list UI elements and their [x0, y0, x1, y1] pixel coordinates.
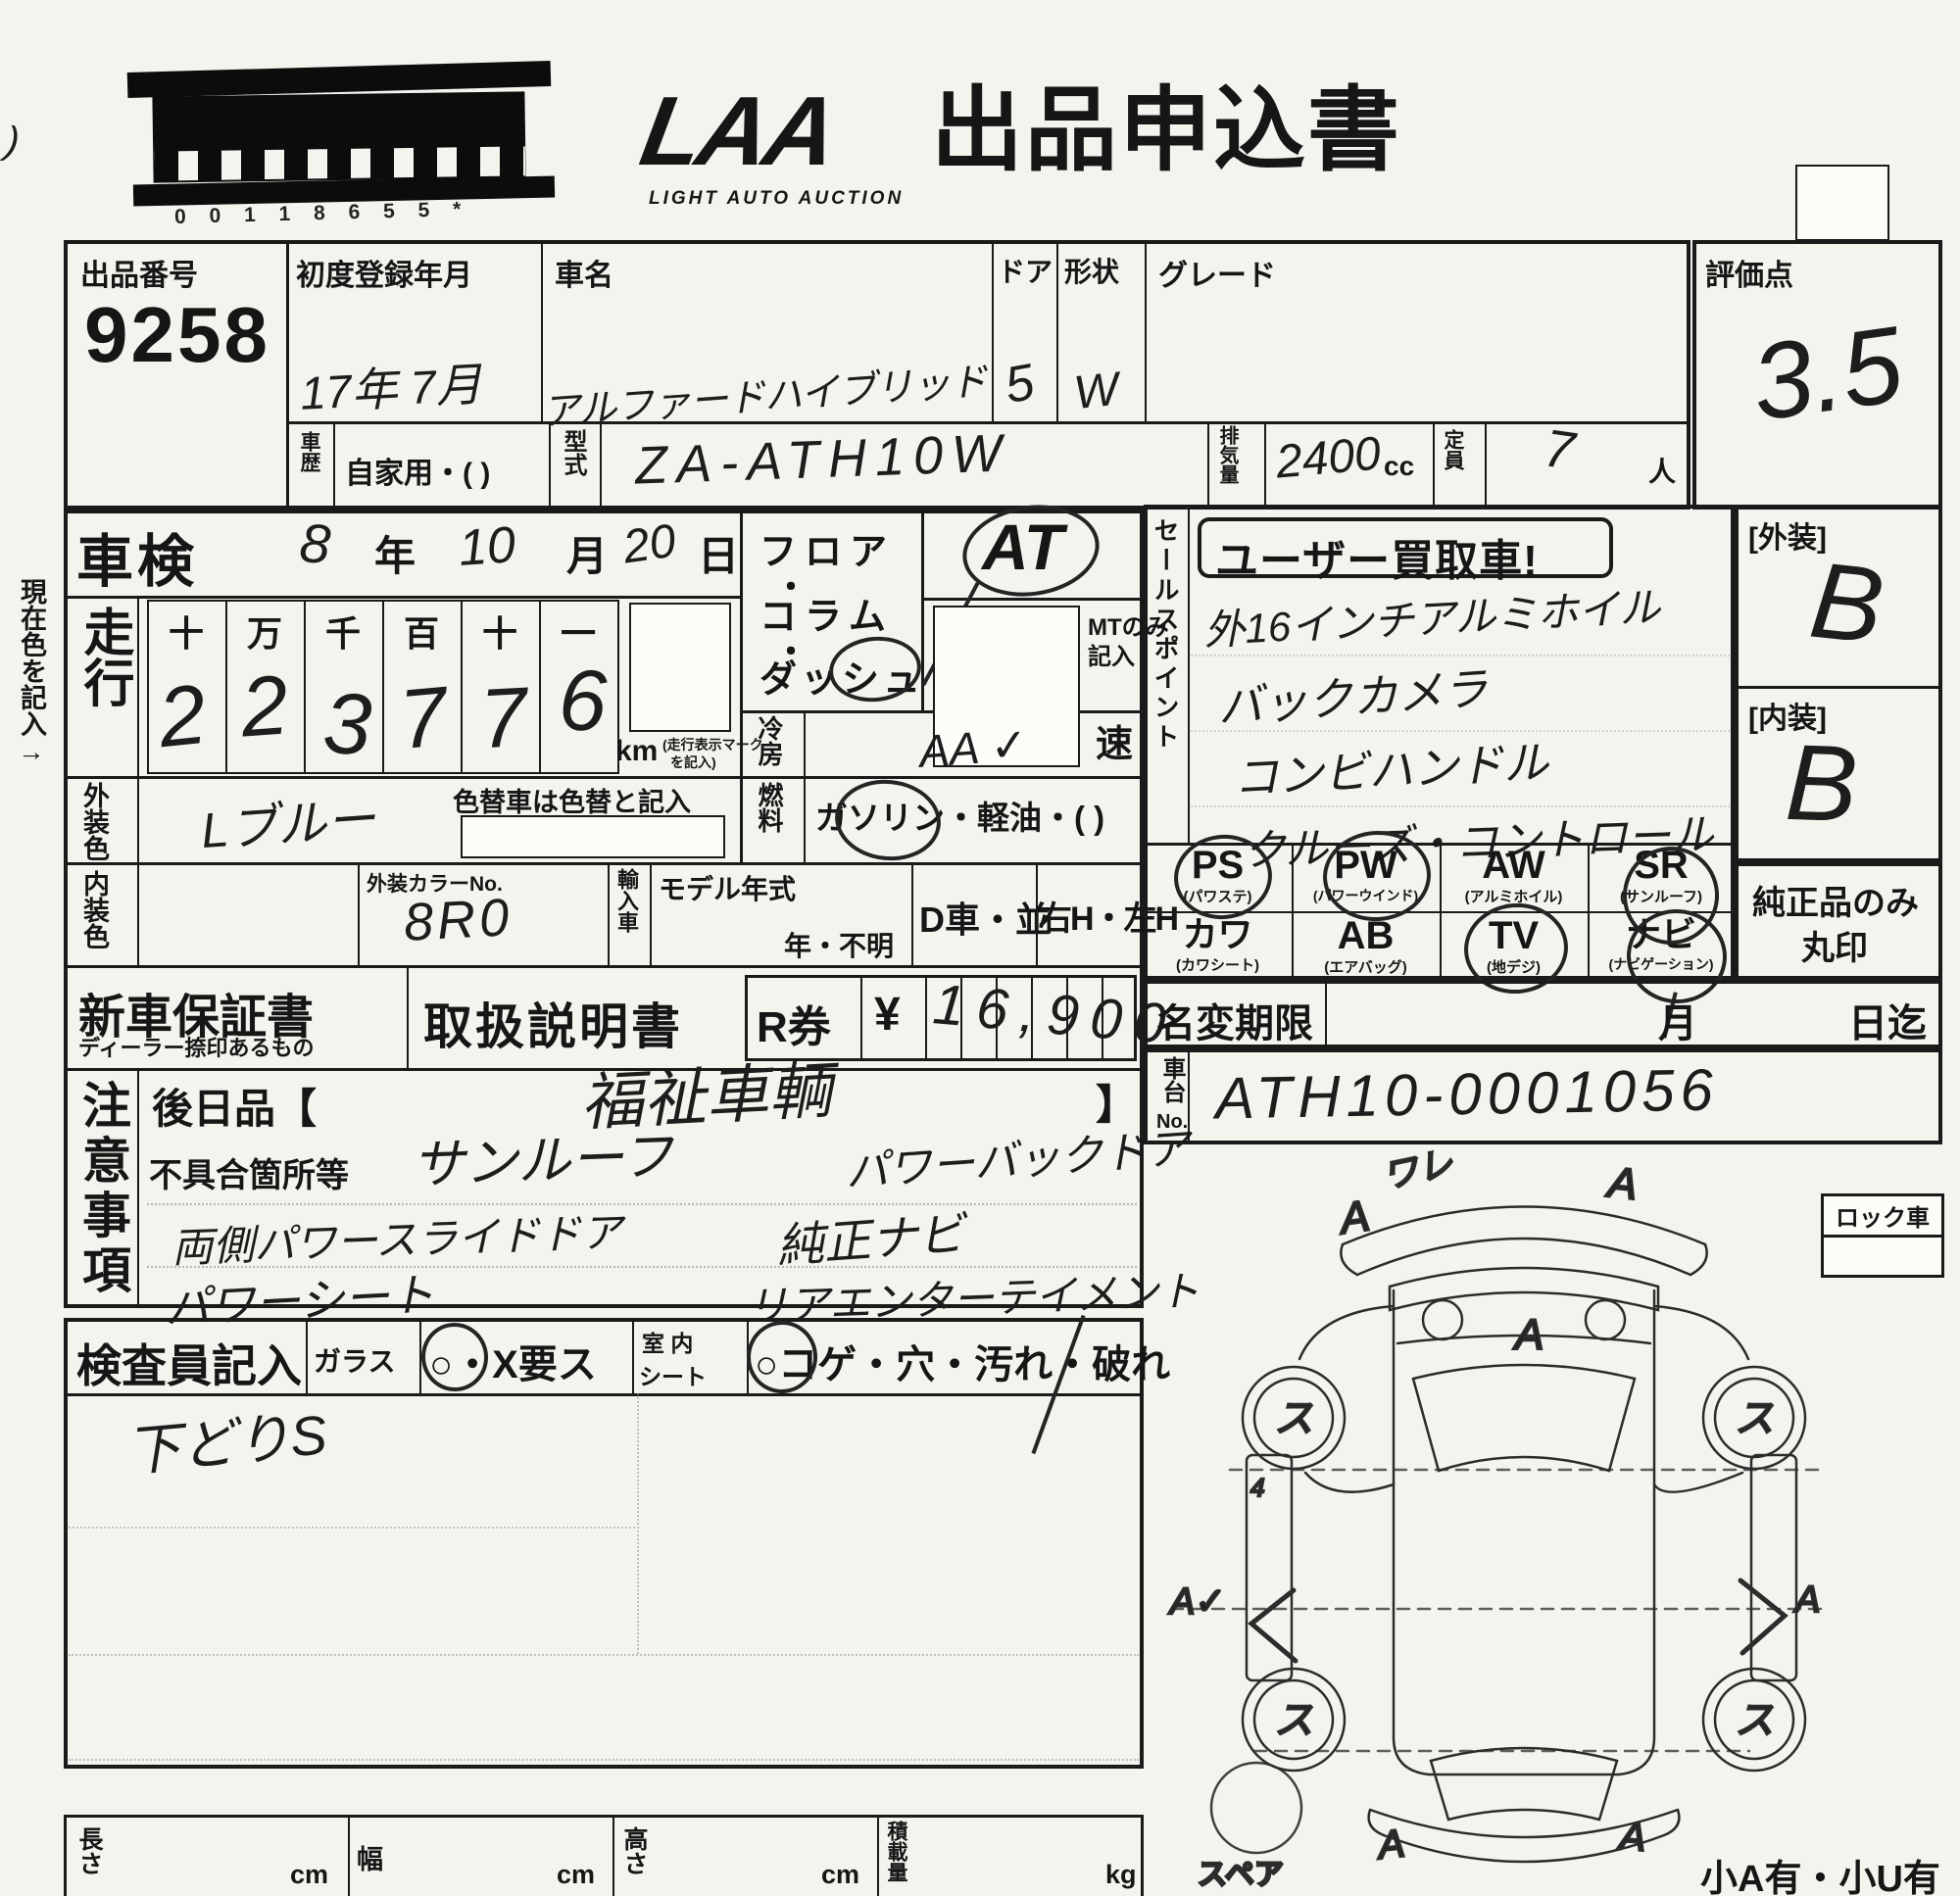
- displacement-label: 排気量: [1217, 425, 1237, 484]
- grid-line: [911, 862, 913, 965]
- grid-line: [549, 421, 551, 510]
- wheel-mark: ス: [1274, 1699, 1313, 1742]
- length-unit: cm: [290, 1860, 328, 1890]
- equip-abbr: AW: [1440, 845, 1588, 886]
- equip-name: (カワシート): [1144, 954, 1292, 975]
- color-change-box: [461, 815, 725, 858]
- seats-unit: 人: [1648, 451, 1676, 490]
- equip-cell: カワ (カワシート): [1144, 915, 1292, 978]
- mileage-col-header: 十: [169, 606, 204, 656]
- grid-line: [1207, 421, 1209, 510]
- doors-label: ドア: [998, 251, 1053, 290]
- seat-label: 室 内: [642, 1325, 693, 1358]
- body-shape-label: 形状: [1064, 251, 1119, 290]
- load-label: 積載量: [886, 1821, 906, 1882]
- damage-mark: A: [1335, 1191, 1373, 1243]
- grid-line: [804, 710, 806, 862]
- user-buyback-text: ユーザー買取車!: [1215, 525, 1539, 588]
- grid-line: [64, 776, 1144, 779]
- front-bumper-outline: [1357, 1239, 1690, 1275]
- current-color-note: 現在色を記入→: [18, 578, 44, 766]
- grid-line: [64, 965, 1144, 968]
- car-damage-diagram: A ワレ A A ス ス ス ス 4 A✓ A A A スペア: [1147, 1132, 1833, 1896]
- shaken-month-unit: 月: [566, 523, 608, 583]
- grid-line: [740, 510, 743, 862]
- first-reg-label: 初度登録年月: [296, 251, 472, 294]
- grid-line: [925, 975, 927, 1061]
- grid-line: [1433, 421, 1435, 510]
- grid-line: [1735, 686, 1942, 689]
- fender-line: [1299, 1306, 1394, 1359]
- body-outline: [1394, 1290, 1654, 1774]
- aircon-label: 冷房: [757, 715, 782, 766]
- grid-line: [1188, 1048, 1190, 1144]
- height-label: 高さ: [621, 1826, 646, 1875]
- auction-sheet: ) 0 0 1 1 8 6 5 5 * LAA LIGHT AUTO AUCTI…: [0, 0, 1960, 1896]
- grid-line: [860, 975, 862, 1061]
- grid-line: [1485, 421, 1487, 510]
- yen-sign: ¥: [874, 988, 901, 1042]
- grid-line: [382, 600, 384, 774]
- side-step: [1751, 1455, 1796, 1680]
- grid-line: [1325, 980, 1327, 1048]
- width-label: 幅: [357, 1838, 383, 1876]
- corner-mark: ): [3, 119, 22, 164]
- grid-line: [137, 862, 139, 965]
- grid-line: [600, 421, 602, 510]
- mileage-digit: 7: [477, 669, 529, 768]
- equip-abbr: AB: [1292, 915, 1440, 956]
- chassis-label: 車台: [1154, 1056, 1189, 1103]
- grid-line: [650, 862, 652, 965]
- interior-color-label: 内装色: [80, 870, 107, 949]
- grid-line: [64, 862, 1144, 865]
- equip-abbr: カワ: [1144, 915, 1292, 954]
- mileage-digit: 2: [154, 666, 211, 767]
- mileage-col-header: 一: [561, 606, 596, 656]
- grid-line: [632, 1318, 634, 1393]
- mileage-digit: 2: [238, 656, 292, 756]
- grid-line: [1188, 505, 1190, 843]
- model-year-label: モデル年式: [659, 868, 796, 907]
- model-code-label: 型式: [561, 429, 584, 476]
- manual-label: 取扱説明書: [423, 988, 683, 1058]
- rear-window: [1431, 1748, 1617, 1820]
- dotted-line: [69, 1527, 635, 1529]
- grid-line: [137, 1068, 139, 1308]
- damage-arrow: [1740, 1580, 1785, 1653]
- history-label: 車歴: [299, 431, 319, 472]
- grid-line: [1036, 862, 1038, 965]
- damage-mark: A: [1616, 1815, 1647, 1860]
- grid-line: [877, 1815, 879, 1896]
- transfer-month-unit: 月: [1658, 992, 1697, 1048]
- inspector-label: 検査員記入: [76, 1331, 302, 1395]
- length-label: 長さ: [76, 1826, 101, 1875]
- mileage-col-header: 万: [247, 606, 282, 656]
- equip-cell: AW (アルミホイル): [1440, 845, 1588, 909]
- grid-line: [539, 600, 541, 774]
- damage-mark: 4: [1250, 1473, 1264, 1502]
- grid-line: [407, 965, 409, 1068]
- lock-car-label: ロック車: [1824, 1196, 1941, 1238]
- genuine-parts-note: 丸印: [1801, 921, 1868, 969]
- lot-no-label: 出品番号: [80, 251, 198, 294]
- wheel-mark: ス: [1735, 1397, 1774, 1440]
- fuel-label: 燃料: [757, 782, 782, 833]
- glass-label: ガラス: [314, 1340, 395, 1380]
- shaken-month: 10: [457, 515, 517, 578]
- fender-line: [1305, 1473, 1394, 1492]
- spare-label: スペア: [1198, 1859, 1284, 1891]
- grid-line: [304, 600, 306, 774]
- mirror: [1586, 1300, 1625, 1339]
- lot-no-value: 9258: [84, 290, 270, 380]
- grid-line: [992, 240, 994, 421]
- score-value: 3.5: [1744, 302, 1910, 446]
- fender-line: [1654, 1306, 1748, 1359]
- shaken-year: 8: [298, 510, 333, 576]
- wheel-mark: ス: [1735, 1699, 1774, 1742]
- mileage-col-header: 百: [404, 606, 439, 656]
- grid-line: [333, 421, 335, 510]
- exterior-color-label: 外装色: [80, 782, 107, 861]
- car-name-label: 車名: [555, 251, 613, 294]
- grid-line: [612, 1815, 614, 1896]
- mileage-digit: 7: [396, 668, 451, 769]
- first-reg-value: 17年 7月: [298, 346, 483, 423]
- import-car-label: 輸入車: [615, 868, 637, 933]
- stamp-box: [1795, 165, 1889, 241]
- genuine-parts-note: 純正品のみ: [1752, 876, 1919, 924]
- grid-line: [608, 862, 610, 965]
- transfer-until: 日迄: [1848, 992, 1927, 1048]
- shaken-day-unit: 日: [698, 523, 739, 583]
- height-unit: cm: [821, 1860, 859, 1890]
- damage-mark: A: [1374, 1822, 1406, 1868]
- wheel-mark: ス: [1274, 1397, 1313, 1440]
- dotted-line: [147, 1203, 1137, 1205]
- grid-line: [1264, 421, 1266, 510]
- grade-label: グレード: [1158, 251, 1276, 294]
- d-car-label: D車・並: [919, 892, 1051, 943]
- fender-line: [1654, 1473, 1742, 1492]
- width-unit: cm: [557, 1860, 595, 1890]
- grid-line: [225, 600, 227, 774]
- barcode: 0 0 1 1 8 6 5 5 *: [125, 59, 562, 216]
- equip-cell: AB (エアバッグ): [1292, 915, 1440, 978]
- barcode-notches: [155, 146, 525, 180]
- aircon-value: AA ✓: [917, 717, 1029, 778]
- damage-mark: A: [1512, 1311, 1543, 1359]
- chassis-label-no: No.: [1156, 1111, 1188, 1134]
- damage-mark: A: [1793, 1580, 1820, 1621]
- speed-suffix: 速: [1096, 713, 1133, 767]
- mileage-col-header: 十: [482, 606, 517, 656]
- load-unit: kg: [1105, 1860, 1137, 1890]
- dimensions-box: [64, 1815, 1144, 1896]
- seats-label: 定員: [1443, 429, 1463, 470]
- damage-mark: A: [1603, 1158, 1640, 1209]
- mileage-mark-box: [629, 603, 731, 732]
- color-change-note: 色替車は色替と記入: [453, 781, 691, 819]
- grid-line: [358, 862, 360, 965]
- front-bumper-outline: [1341, 1244, 1357, 1275]
- body-shape-value: W: [1071, 363, 1121, 420]
- equip-name: (エアバッグ): [1292, 956, 1440, 977]
- damage-mark: ワレ: [1379, 1142, 1456, 1196]
- chassis-value: ATH10-0001056: [1214, 1056, 1719, 1133]
- exterior-color-value: Lブルー: [199, 780, 377, 862]
- grid-line: [348, 1815, 350, 1896]
- dotted-line: [69, 1654, 1139, 1656]
- small-scratch-note: 小A有・小U有: [1700, 1848, 1940, 1896]
- mileage-unit: km: [615, 735, 658, 768]
- history-value: 自家用・( ): [345, 449, 490, 492]
- grid-line: [921, 598, 1144, 601]
- spare-tire: [1211, 1763, 1301, 1853]
- grid-line: [286, 240, 289, 510]
- exterior-rating-value: B: [1805, 538, 1889, 669]
- laa-logo: LAA: [634, 82, 841, 180]
- front-bumper-outline: [1690, 1244, 1707, 1275]
- later-items-label: 後日品【: [152, 1076, 317, 1136]
- page-title: 出品申込書: [931, 84, 1401, 176]
- defect-label: 不具合箇所等: [149, 1148, 349, 1196]
- damage-mark: A✓: [1168, 1581, 1226, 1623]
- seat-label: シート: [639, 1358, 707, 1391]
- grid-line: [1145, 240, 1147, 421]
- exterior-color-no-value: 8R0: [402, 887, 514, 953]
- laa-logo-subtitle: LIGHT AUTO AUCTION: [649, 188, 904, 210]
- warranty-sub-label: ディーラー捺印あるもの: [78, 1031, 314, 1062]
- lock-car-box: ロック車: [1821, 1193, 1944, 1278]
- defect-item: 純正ナビ: [774, 1194, 966, 1276]
- grid-line: [1056, 240, 1058, 421]
- shaken-year-unit: 年: [374, 523, 416, 583]
- notes-side-label: 注意事項: [78, 1080, 127, 1299]
- mileage-unit-note: (走行表示マーク: [662, 735, 763, 754]
- exterior-rating-label: [外装]: [1748, 513, 1827, 557]
- dotted-line: [69, 1759, 1139, 1761]
- dotted-line: [637, 1393, 639, 1654]
- mirror: [1423, 1300, 1462, 1339]
- mileage-digit: 3: [320, 673, 373, 775]
- sales-side-label: セールスポイント: [1152, 517, 1178, 753]
- score-label: 評価点: [1705, 251, 1793, 294]
- mt-note: 記入: [1088, 637, 1135, 671]
- displacement-unit: cc: [1384, 451, 1414, 482]
- windshield: [1413, 1365, 1635, 1471]
- mileage-unit-note: を記入): [670, 753, 716, 772]
- grid-line: [461, 600, 463, 774]
- damage-arrow: [1251, 1590, 1296, 1661]
- grid-line: [306, 1318, 308, 1393]
- defect-item: サンルーフ: [411, 1112, 674, 1198]
- displacement-value: 2400: [1274, 426, 1383, 489]
- mileage-digit: 6: [557, 650, 608, 752]
- interior-rating-value: B: [1784, 720, 1860, 847]
- model-year-value: 年・不明: [784, 925, 894, 964]
- mileage-label: 走行: [78, 606, 129, 707]
- shaken-day: 20: [619, 514, 679, 575]
- shaken-label: 車検: [76, 515, 198, 598]
- mileage-col-header: 千: [325, 606, 361, 656]
- transfer-label: 名変期限: [1156, 992, 1313, 1048]
